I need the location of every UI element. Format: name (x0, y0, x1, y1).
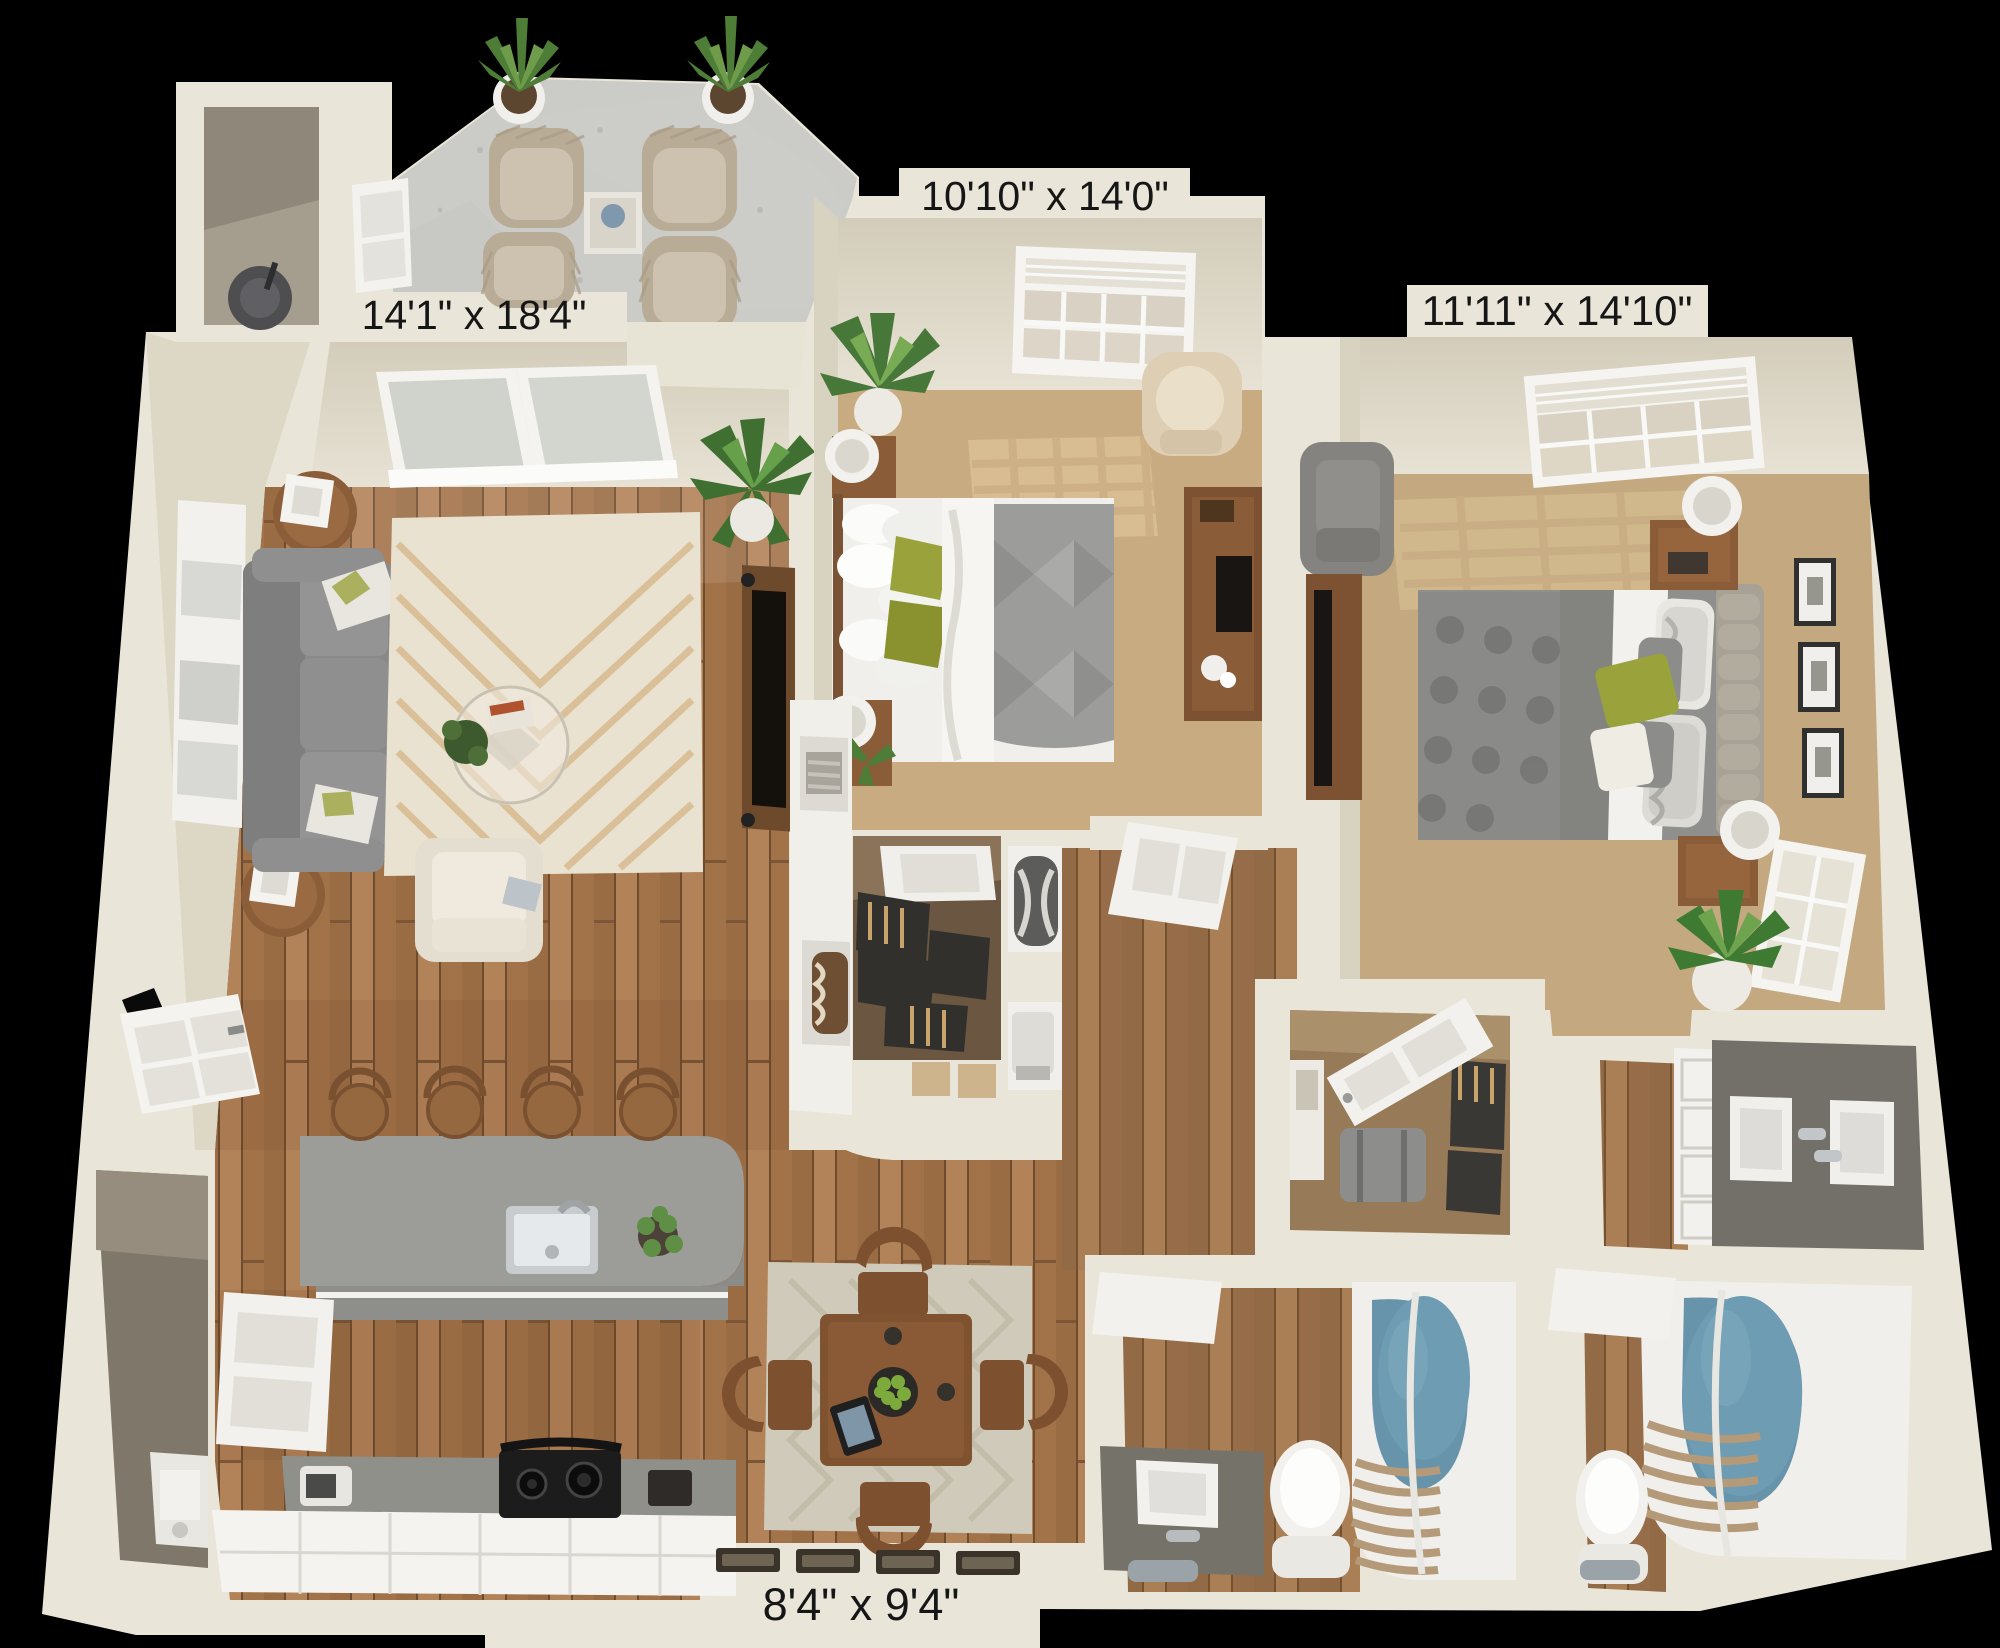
svg-text:8'4" x 9'4": 8'4" x 9'4" (763, 1579, 960, 1630)
svg-text:10'10" x 14'0": 10'10" x 14'0" (921, 173, 1169, 219)
svg-text:14'1" x 18'4": 14'1" x 18'4" (362, 292, 587, 338)
svg-text:11'11" x 14'10": 11'11" x 14'10" (1422, 287, 1693, 334)
